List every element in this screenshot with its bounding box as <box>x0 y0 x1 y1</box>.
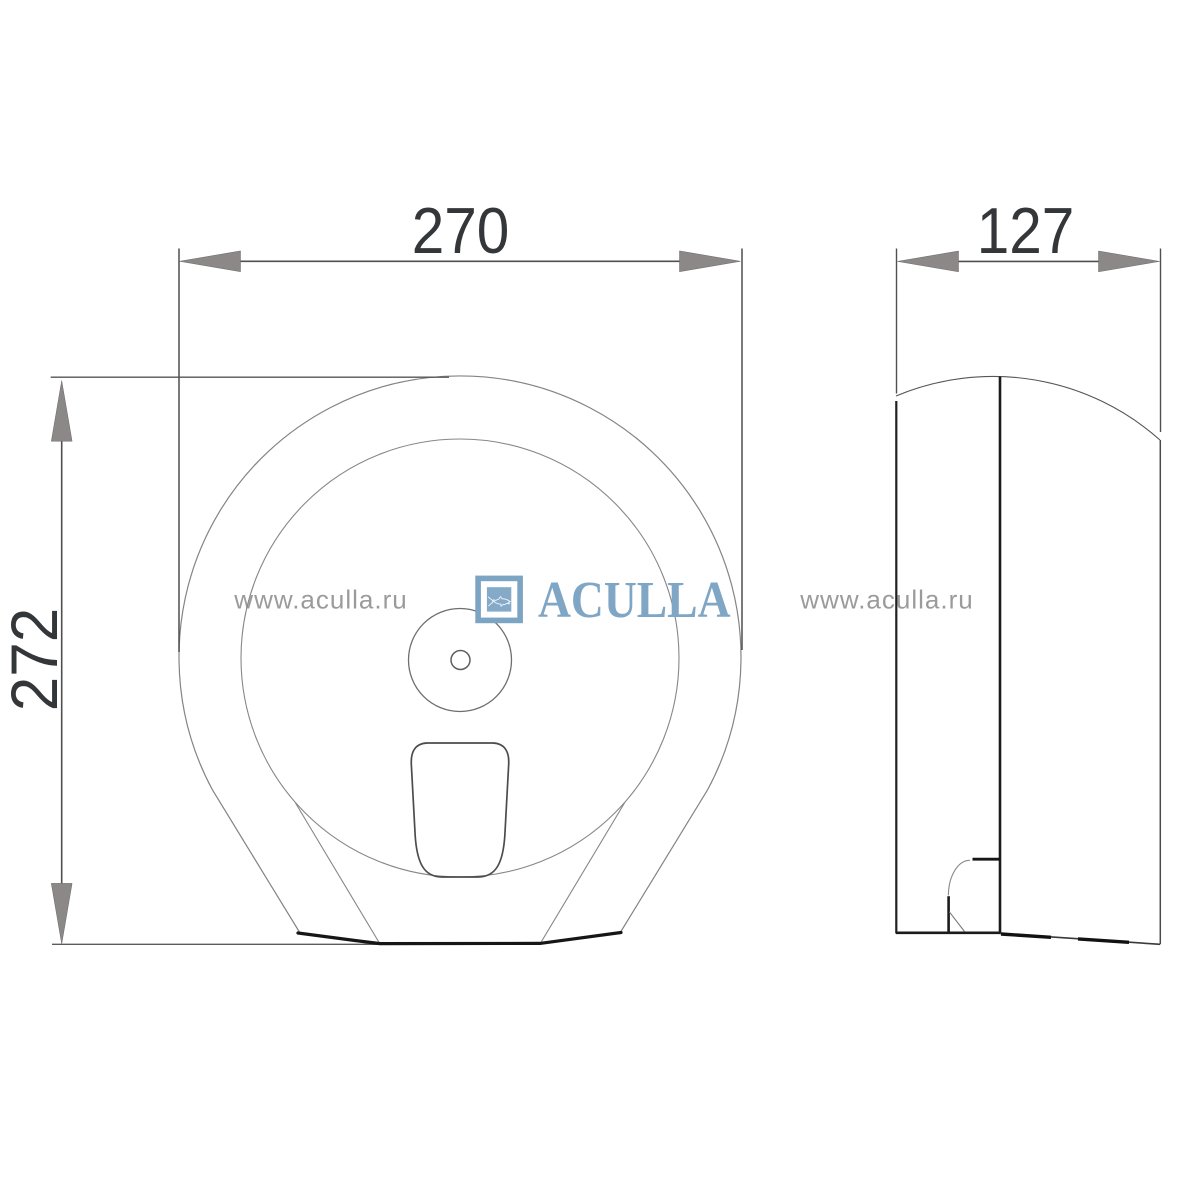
svg-text:www.aculla.ru: www.aculla.ru <box>233 585 407 615</box>
svg-text:127: 127 <box>977 195 1075 268</box>
svg-text:272: 272 <box>0 608 71 712</box>
svg-text:www.aculla.ru: www.aculla.ru <box>799 585 973 615</box>
svg-text:270: 270 <box>412 195 510 268</box>
svg-text:ACULLA: ACULLA <box>538 570 731 628</box>
